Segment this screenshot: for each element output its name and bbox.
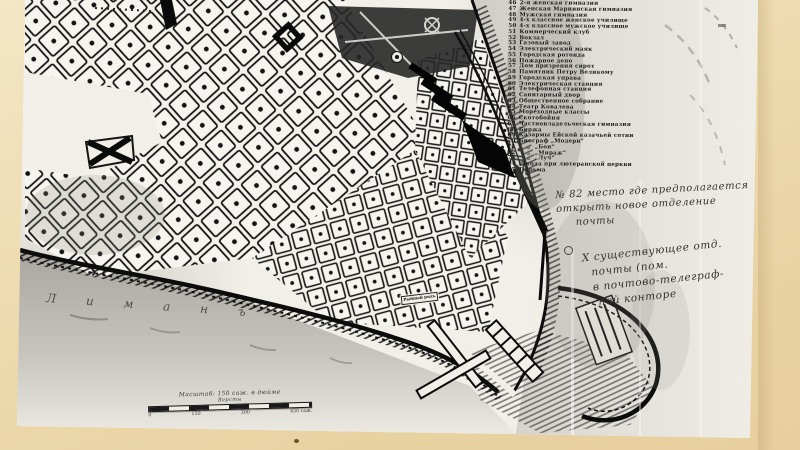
legend-item-label: Тюрьма <box>518 168 545 174</box>
scale-tick-label: 450 саж. <box>290 409 312 415</box>
scale-bar-block: Масштаб: 150 саж. в дюйме Версты 0150300… <box>148 389 313 419</box>
handwritten-circle-mark <box>564 246 573 255</box>
map-photo: 46 2-я женская гимназия 47 Женская Марии… <box>0 0 800 450</box>
water-name-letter: м <box>123 296 134 311</box>
legend-item-number: 75 <box>505 168 515 174</box>
water-name-letter: Л <box>46 291 57 306</box>
scale-tick-label: 150 <box>191 412 200 417</box>
water-name-letter: а <box>163 299 171 313</box>
water-name-letter: ъ <box>237 304 246 319</box>
scale-tick-label: 0 <box>148 413 151 418</box>
mat-right-shading <box>758 0 800 450</box>
water-name-letter: и <box>86 294 95 309</box>
legend-panel: 46 2-я женская гимназия 47 Женская Марии… <box>505 1 758 175</box>
scale-tick-label: 300 <box>241 410 250 415</box>
mat-speck <box>294 439 299 443</box>
water-name-letter: н <box>200 302 209 317</box>
